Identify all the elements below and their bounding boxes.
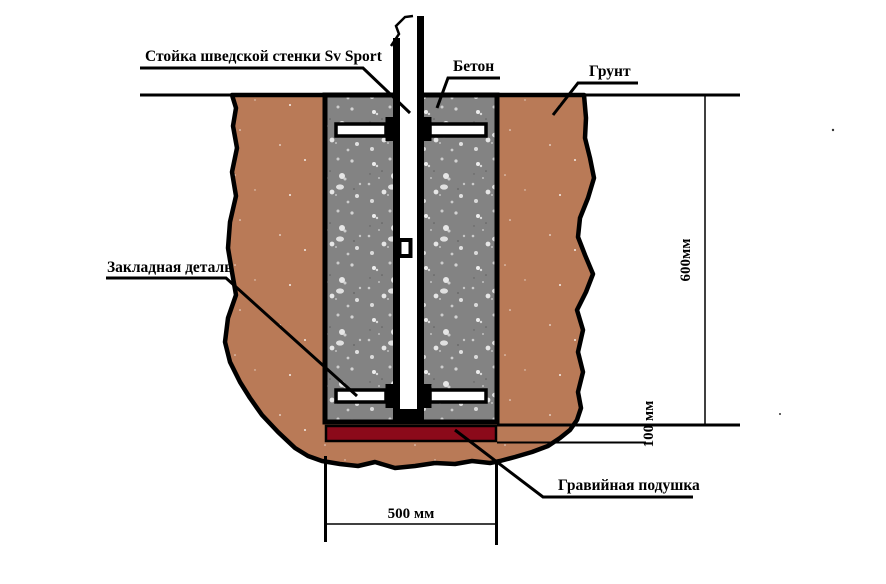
post-left-edge — [393, 38, 400, 422]
stray-dot-mid-right — [779, 413, 781, 415]
embed-plate-upper-left — [336, 124, 386, 136]
foundation-diagram: Стойка шведской стенки Sv Sport Бетон Гр… — [0, 0, 886, 584]
gravel-dim-text: 100 мм — [641, 401, 657, 448]
clamp-lower-right — [424, 384, 432, 408]
post-body — [400, 18, 417, 413]
wall-bars-post — [391, 16, 424, 422]
depth-dim-text: 600мм — [678, 239, 694, 282]
gravel-label: Гравийная подушка — [558, 477, 700, 494]
width-dim-text: 500 мм — [388, 506, 435, 522]
embed-label: Закладная деталь — [107, 259, 232, 276]
embed-plate-upper-right — [430, 124, 486, 136]
post-label: Стойка шведской стенки Sv Sport — [145, 48, 383, 65]
post-rung-hole — [400, 240, 411, 256]
embed-plate-lower-right — [430, 390, 486, 402]
embed-plate-lower-left — [336, 390, 386, 402]
diagram-canvas: Стойка шведской стенки Sv Sport Бетон Гр… — [0, 0, 886, 584]
concrete-label: Бетон — [453, 58, 494, 75]
clamp-upper-left — [386, 117, 394, 141]
gravel-cushion — [326, 426, 496, 441]
post-bottom-cap — [393, 409, 424, 422]
ground-label: Грунт — [589, 63, 631, 80]
stray-dot-top-right — [832, 129, 834, 131]
clamp-upper-right — [424, 117, 432, 141]
clamp-lower-left — [386, 384, 394, 408]
post-right-edge — [417, 16, 424, 422]
